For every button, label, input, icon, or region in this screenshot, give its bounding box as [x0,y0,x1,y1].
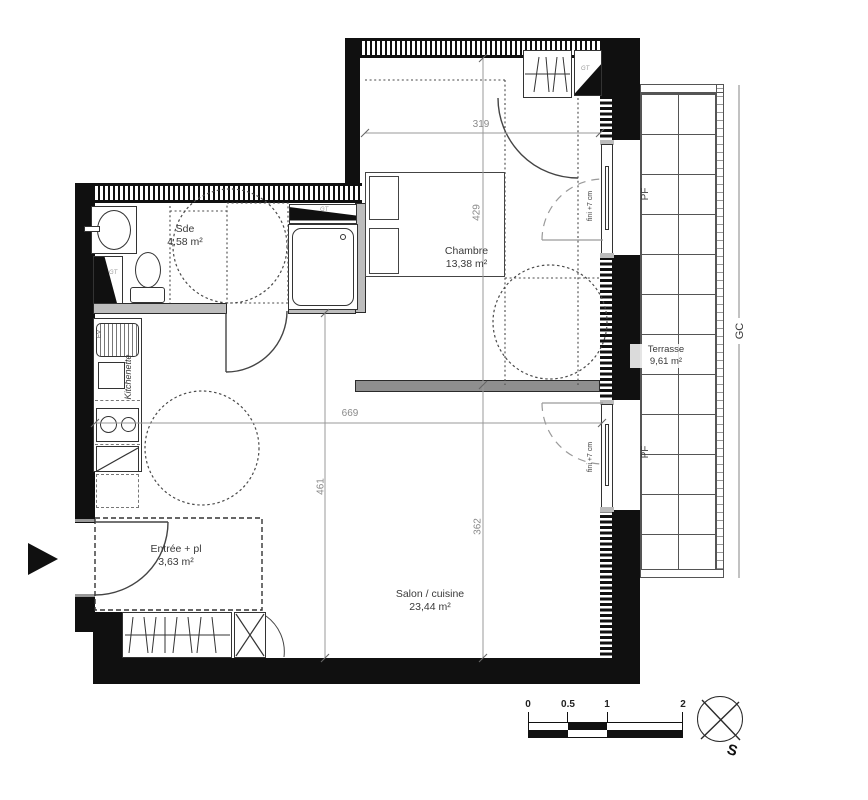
appliance-space-reserved [96,474,139,508]
room-area: 4,58 m² [148,236,222,249]
wall-entry-step [93,612,122,658]
pf1-label: PF [640,183,652,205]
duct-box-bathroom [93,256,123,304]
room-area: 3,63 m² [128,556,224,569]
scale-05: 0.5 [556,699,580,710]
compass-south-label: S [720,739,745,762]
appliance-space [96,446,139,472]
wall-bottom [93,658,640,684]
duct-label-bedroom: GT [581,66,589,72]
clearance-circle-bedroom [493,265,607,379]
dim-chambre-depth: 429 [472,193,483,233]
washbasin [97,210,131,250]
scale-tick [567,712,568,722]
scale-seg-1 [528,730,568,738]
wall-right-upper-hatch [600,98,612,140]
wall-top-bedroom-left-return [345,38,360,183]
gc-label: GC [734,318,748,344]
floor-plan: GT GT GT EV [0,0,868,800]
dim-salon-depth-left: 461 [316,467,327,507]
toilet-tank [130,287,165,303]
bedroom-door-swing [498,98,578,178]
faucet [84,226,100,232]
dim-salon-width: 669 [328,408,372,419]
scale-0: 0 [521,699,535,710]
shower-tray [292,228,354,306]
duct-wedge [94,257,122,303]
wall-right-middle-hatch [600,255,612,400]
room-label-chambre: Chambre 13,38 m² [424,245,509,271]
entry-door-jamb-top [75,519,95,522]
burner-left [100,416,117,433]
wall-right-lower-hatch [600,510,612,658]
fini-label-2: fini +7 cm [587,430,597,484]
bedroom-closet [523,50,572,98]
room-name: Salon / cuisine [372,588,488,601]
kitchen-sink-basin [98,362,125,389]
room-label-salon: Salon / cuisine 23,44 m² [372,588,488,614]
room-area: 9,61 m² [630,356,702,368]
room-name: Chambre [424,245,509,258]
bathroom-door-swing [226,311,287,372]
room-name: Terrasse [630,344,702,356]
dim-salon-depth-right: 362 [473,507,484,547]
entry-closet [122,612,232,658]
window-pf1-cap-bottom [600,253,614,258]
wall-top-bathroom [78,183,362,203]
compass-circle [697,696,743,742]
room-name: Entrée + pl [128,543,224,556]
scale-seg-2 [568,722,607,730]
kitchen-sink-label: EV [97,324,103,344]
fini-label-1: fini +7 cm [587,179,597,233]
entrance-arrow [28,543,58,575]
room-area: 13,38 m² [424,258,509,271]
pf2-label: PF [640,441,652,463]
pillow-top [369,176,399,220]
cabinet-door-swing [266,616,284,657]
toilet-bowl [135,252,161,288]
dim-chambre-width: 319 [459,119,503,130]
duct-box-bedroom [574,50,602,96]
wall-left-lower [75,597,95,632]
doors [95,98,578,657]
kitchenette-label: Kitchenette [123,342,135,412]
window-pf2-sash [605,424,609,486]
shower-drain [340,234,346,240]
room-label-terrasse: Terrasse 9,61 m² [630,344,702,368]
scale-tick [682,712,683,722]
terrace-rail-bottom [640,569,724,578]
water-heater-cabinet [234,612,266,658]
wall-bathroom-bottom-left [93,303,227,314]
pillow-bottom [369,228,399,274]
scale-tick [528,712,529,722]
terrace-rail-top [640,84,724,93]
burner-right [121,417,136,432]
room-area: 23,44 m² [372,601,488,614]
kitchen-divider-2 [95,444,140,445]
terrace-tiles [640,93,716,573]
scale-2: 2 [676,699,690,710]
scale-tick [607,712,608,722]
scale-seg-3 [607,730,683,738]
room-name: Sde [148,223,222,236]
clearance-circle-living [145,391,259,505]
room-label-sde: Sde 4,58 m² [148,223,222,249]
scale-1: 1 [600,699,614,710]
window-pf2-cap-bottom [600,507,614,512]
duct-wedge [575,51,601,95]
terrace-rail-right [716,84,724,578]
duct-label-shower: GT [320,207,328,213]
window-pf1-sash [605,166,609,230]
wall-bedroom-living [355,380,600,392]
duct-label-bathroom: GT [109,270,117,276]
room-label-entree: Entrée + pl 3,63 m² [128,543,224,569]
